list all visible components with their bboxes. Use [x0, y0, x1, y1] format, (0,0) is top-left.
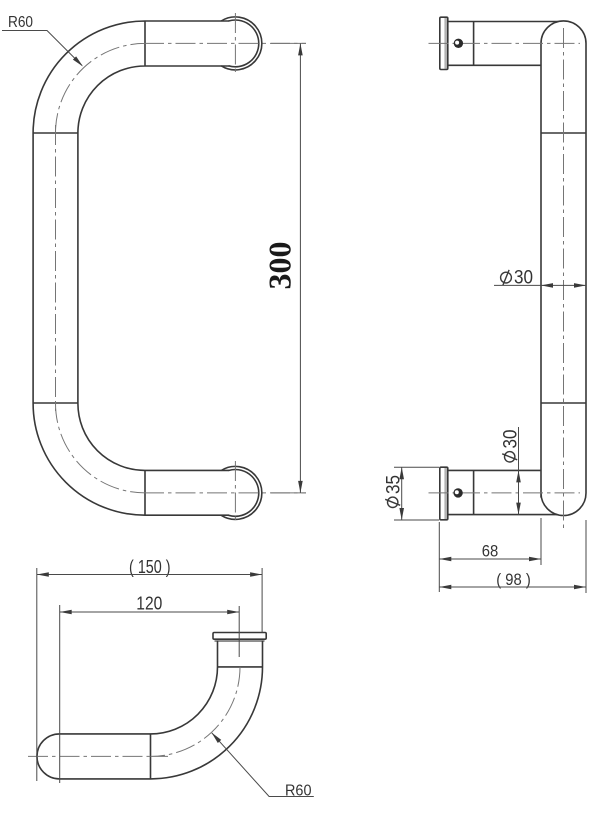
- svg-text:( 150 ): ( 150 ): [129, 557, 171, 577]
- svg-text:( 98 ): ( 98 ): [496, 570, 531, 589]
- svg-text:120: 120: [136, 594, 162, 614]
- svg-text:300: 300: [262, 242, 298, 290]
- svg-text:R60: R60: [8, 14, 33, 31]
- svg-text:68: 68: [482, 542, 499, 561]
